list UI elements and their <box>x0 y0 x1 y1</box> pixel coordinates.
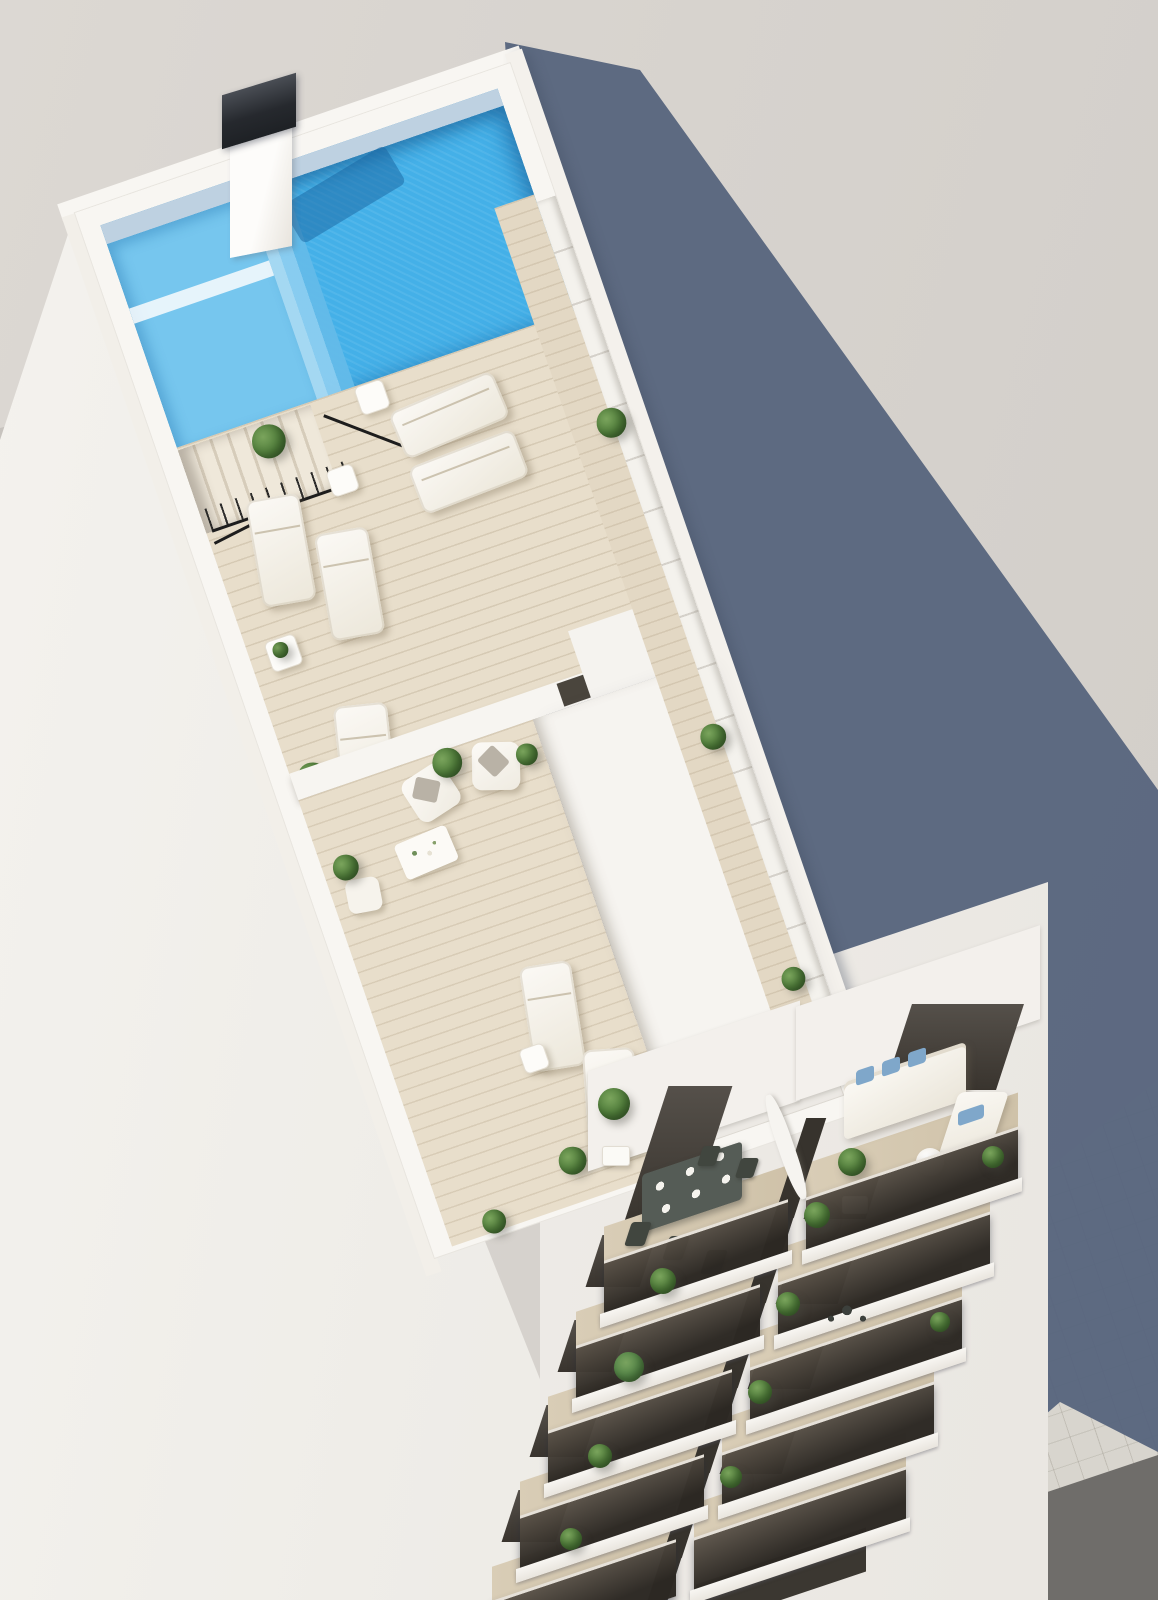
plant-pot <box>602 1146 630 1166</box>
balcony-plant <box>588 1444 612 1468</box>
balcony-plant <box>720 1466 742 1488</box>
architectural-render-scene <box>0 0 1158 1600</box>
balcony-plant <box>804 1202 830 1228</box>
bistro-set <box>826 1300 868 1326</box>
balcony-plant <box>982 1146 1004 1168</box>
lounge-armchair <box>472 742 521 791</box>
pouf <box>344 875 384 915</box>
balcony-plant <box>650 1268 676 1294</box>
balcony-plant <box>838 1148 866 1176</box>
balcony-plant <box>776 1292 800 1316</box>
balcony-plant <box>598 1088 630 1120</box>
balcony-palm <box>614 1352 644 1382</box>
balcony-plant <box>930 1312 950 1332</box>
balcony-plant <box>748 1380 772 1404</box>
balcony-plant <box>560 1528 582 1550</box>
